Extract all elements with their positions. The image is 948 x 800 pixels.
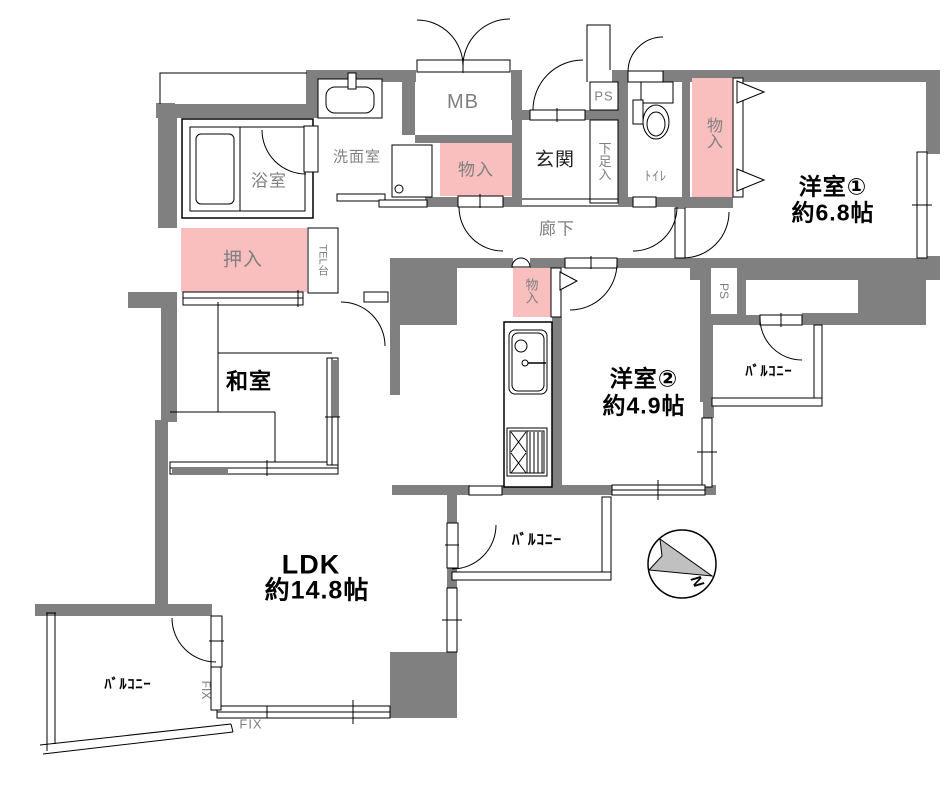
floor-plan: 浴室 洗面室 MB 物入 玄関 PS 下足入 ﾄｲﾚ 物入 洋室① 約6.8帖 …: [0, 0, 948, 800]
tel-stand-label: TEL台: [317, 244, 328, 275]
shoe-cabinet-label: 下足入: [598, 142, 611, 181]
balcony2-label: ﾊﾞﾙｺﾆｰ: [512, 533, 562, 548]
room2-size-label: 約4.9帖: [603, 395, 686, 418]
storage1-label: 物入: [458, 162, 494, 179]
mb-door-right: [463, 60, 510, 72]
meter-box-label: MB: [447, 92, 479, 112]
washroom-sliding-panel-1: [337, 194, 385, 201]
balcony1-label: ﾊﾞﾙｺﾆｰ: [746, 364, 793, 378]
room1-name-label: 洋室①: [799, 176, 867, 199]
toilet-label: ﾄｲﾚ: [645, 170, 668, 183]
oshiire-label: 押入: [223, 251, 263, 270]
washing-machine-pan: [392, 145, 432, 197]
ldk-name-label: LDK: [282, 552, 341, 579]
porch-door-leaf: [628, 71, 663, 82]
toilet-door-leaf: [633, 197, 656, 207]
bathroom-fixtures: [182, 119, 318, 218]
storage3-label: 物入: [525, 278, 538, 304]
ldk-size-label: 約14.8帖: [265, 579, 370, 604]
balcony3-label: ﾊﾞﾙｺﾆｰ: [105, 677, 152, 691]
ps1-label: PS: [594, 90, 613, 103]
fix1-label: FIX: [200, 681, 212, 700]
bath-label: 浴室: [251, 173, 287, 190]
dk-south-window: [469, 486, 502, 495]
washitsu-label: 和室: [226, 371, 272, 393]
fix2-label: FIX: [239, 718, 262, 731]
ps2-label: PS: [718, 283, 730, 299]
bath-door-leaf: [304, 126, 318, 172]
mb-door-left: [417, 60, 463, 72]
entrance-label: 玄関: [535, 151, 575, 170]
storage2-label: 物入: [704, 117, 720, 149]
kitchen-unit: [504, 322, 552, 487]
washstand: [318, 73, 382, 118]
room1-size-label: 約6.8帖: [792, 202, 875, 225]
washroom-label: 洗面室: [333, 150, 381, 165]
hallway-label: 廊下: [539, 221, 575, 238]
vestibule-door-leaf: [364, 292, 388, 302]
room2-name-label: 洋室②: [610, 368, 678, 391]
washroom-sliding-panel-2: [379, 200, 427, 207]
